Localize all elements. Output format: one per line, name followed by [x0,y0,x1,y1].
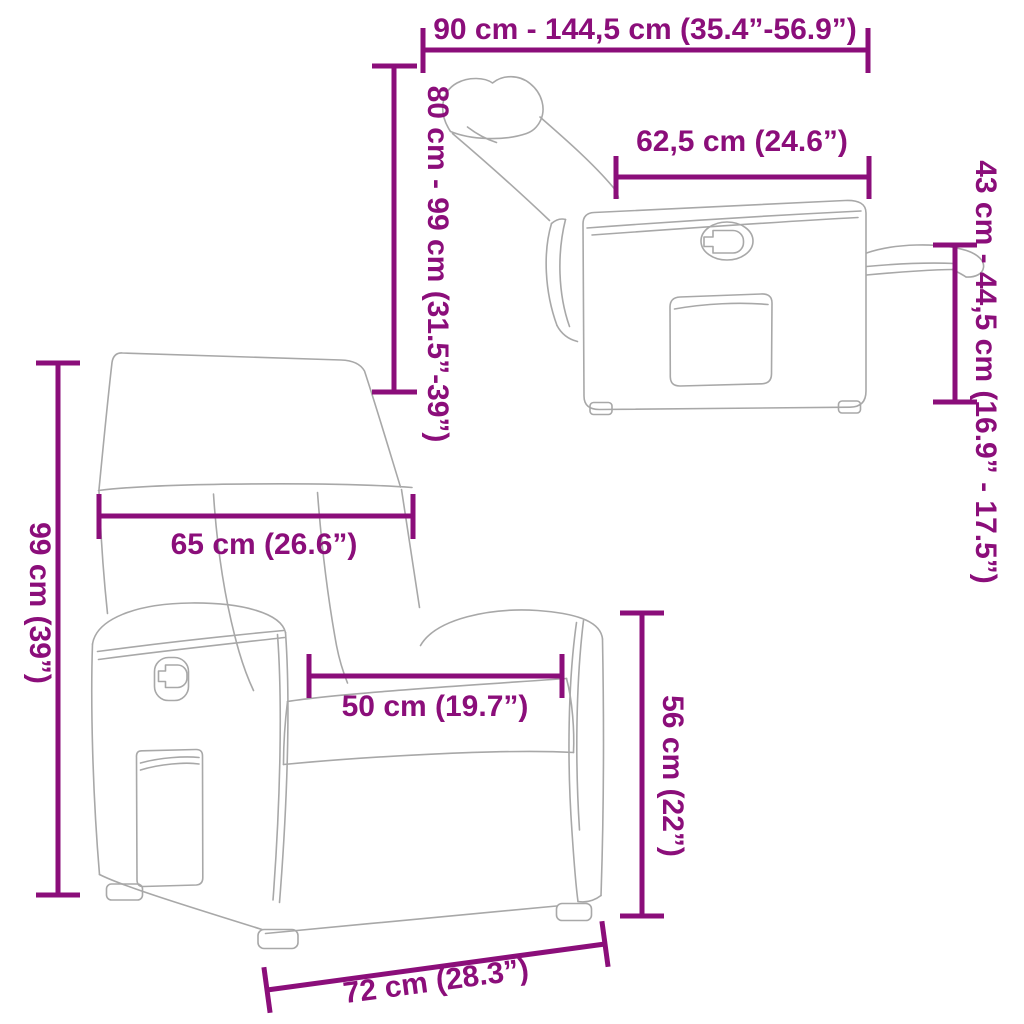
armrest-front-edge [273,635,280,901]
label-back-width: 65 cm (26.6”) [171,530,358,560]
seam-line [592,218,858,236]
label-seat-depth: 62,5 cm (24.6”) [636,127,848,157]
chair-foot [107,884,143,900]
chair-foot [557,904,592,921]
armrest-curve [546,224,557,326]
chair-body-outline [583,200,866,409]
recline-lever-icon [155,658,189,701]
backrest-edge [540,117,619,198]
dim-reclined-height [372,66,417,392]
label-seat-height: 56 cm (22”) [657,695,687,857]
side-pocket-inner-line [141,763,200,770]
armrest-front-edge [280,633,288,903]
armrest-outer-edge [92,644,100,875]
armrest-top-arc [93,603,286,644]
armrest-inner-edge [577,621,584,831]
dimension-lines [36,28,977,1013]
base-bottom-edge [266,906,557,934]
recline-handle-keyhole [704,231,744,254]
recline-lever-keyhole [159,665,188,688]
side-pocket [136,749,202,886]
label-reclined-height: 80 cm - 99 cm (31.5”-39”) [422,86,452,443]
base-contour [578,896,601,902]
armrest-curve [557,326,578,342]
label-seat-width: 50 cm (19.7”) [342,692,529,722]
armrest-curve [552,219,566,224]
backrest-edge [453,134,550,221]
headrest-seam [99,484,413,491]
base-contour [100,875,263,930]
footrest-seam [867,263,956,266]
diagram-canvas [0,0,1024,1024]
dim-tick [602,921,608,967]
recliner-front-view [92,353,604,949]
dim-tick [264,967,270,1013]
dim-seat-depth [616,156,869,199]
side-pocket-inner-line [141,757,200,763]
cushion-fold-line [468,127,497,143]
label-footrest-height: 43 cm - 44,5 cm (16.9” - 17.5”) [970,160,1000,584]
seam-line [214,494,254,691]
label-total-height: 99 cm (39”) [24,522,54,684]
footrest-top-edge [867,245,984,277]
side-pocket-inner-line [675,303,769,309]
headrest-outline [99,353,401,490]
label-total-width: 90 cm - 144,5 cm (35.4”-56.9”) [433,15,857,45]
armrest-curve [560,220,570,327]
seat-seam [284,751,574,764]
product-dimension-diagram: 90 cm - 144,5 cm (35.4”-56.9”) 80 cm - 9… [0,0,1024,1024]
recline-handle-icon [701,222,753,260]
headrest-outline [443,77,543,139]
footrest-seam [867,270,953,276]
seam-line [318,493,348,684]
armrest-outer-edge [601,639,603,896]
